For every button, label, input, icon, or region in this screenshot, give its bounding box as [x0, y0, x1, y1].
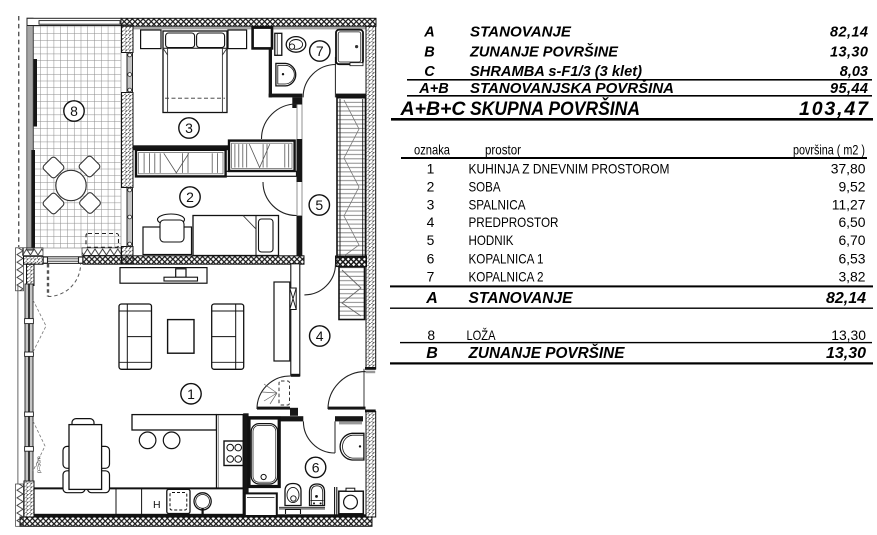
svg-text:ZUNANJE POVRŠINE: ZUNANJE POVRŠINE: [469, 43, 619, 61]
svg-text:8: 8: [427, 327, 435, 343]
svg-text:A: A: [425, 290, 438, 307]
svg-text:STANOVANJE: STANOVANJE: [469, 290, 574, 307]
svg-text:2: 2: [427, 178, 435, 194]
svg-text:2: 2: [186, 189, 194, 205]
svg-text:3: 3: [427, 196, 435, 212]
svg-text:C: C: [424, 64, 435, 80]
svg-text:PREDPROSTOR: PREDPROSTOR: [469, 214, 559, 230]
svg-text:3,82: 3,82: [838, 269, 865, 285]
svg-text:7: 7: [316, 43, 324, 59]
svg-text:B: B: [424, 45, 434, 61]
svg-text:KOPALNICA 2: KOPALNICA 2: [469, 269, 544, 285]
svg-text:SKUPNA POVRŠINA: SKUPNA POVRŠINA: [470, 96, 640, 120]
svg-text:95,44: 95,44: [830, 81, 868, 97]
svg-text:prostor: prostor: [485, 142, 521, 158]
svg-text:6,70: 6,70: [838, 232, 865, 248]
svg-text:A+B+C: A+B+C: [399, 98, 466, 120]
svg-text:9,52: 9,52: [838, 178, 865, 194]
svg-text:6,50: 6,50: [838, 214, 865, 230]
svg-text:SPALNICA: SPALNICA: [469, 196, 527, 212]
svg-text:82,14: 82,14: [826, 290, 866, 307]
svg-text:8: 8: [70, 103, 78, 119]
svg-text:ZUNANJE POVRŠINE: ZUNANJE POVRŠINE: [468, 343, 626, 362]
svg-text:8,03: 8,03: [840, 64, 868, 80]
svg-text:H: H: [153, 499, 161, 511]
svg-text:LOŽA: LOŽA: [467, 327, 497, 343]
svg-text:6: 6: [427, 250, 435, 266]
svg-text:3: 3: [185, 120, 193, 136]
svg-text:SOBA: SOBA: [469, 178, 502, 194]
svg-text:p=5cm: p=5cm: [37, 456, 43, 473]
svg-text:STANOVANJE: STANOVANJE: [470, 25, 572, 41]
svg-text:5: 5: [315, 197, 323, 213]
svg-text:KUHINJA Z DNEVNIM PROSTOROM: KUHINJA Z DNEVNIM PROSTOROM: [469, 161, 670, 177]
svg-text:37,80: 37,80: [831, 161, 866, 177]
svg-text:HODNIK: HODNIK: [469, 232, 515, 248]
svg-text:6,53: 6,53: [838, 250, 865, 266]
svg-text:4: 4: [427, 214, 435, 230]
svg-text:11,27: 11,27: [832, 196, 866, 212]
svg-text:B: B: [426, 345, 438, 362]
svg-text:1: 1: [187, 386, 195, 402]
svg-text:A+B: A+B: [418, 81, 448, 97]
svg-text:1: 1: [427, 161, 435, 177]
svg-text:7: 7: [427, 269, 435, 285]
svg-text:A: A: [423, 25, 434, 41]
svg-text:13,30: 13,30: [830, 45, 868, 61]
svg-text:SHRAMBA s-F1/3 (3 klet): SHRAMBA s-F1/3 (3 klet): [470, 64, 642, 80]
svg-text:82,14: 82,14: [830, 25, 868, 41]
svg-text:13,30: 13,30: [826, 345, 866, 362]
svg-text:103,47: 103,47: [799, 98, 869, 120]
svg-text:6: 6: [312, 459, 320, 475]
svg-text:13,30: 13,30: [831, 327, 866, 343]
svg-text:5: 5: [427, 232, 435, 248]
svg-text:STANOVANJSKA POVRŠINA: STANOVANJSKA POVRŠINA: [470, 79, 674, 97]
svg-text:4: 4: [316, 328, 324, 344]
svg-text:površina ( m2 ): površina ( m2 ): [793, 142, 865, 158]
svg-text:KOPALNICA 1: KOPALNICA 1: [469, 250, 544, 266]
svg-text:oznaka: oznaka: [414, 142, 450, 158]
